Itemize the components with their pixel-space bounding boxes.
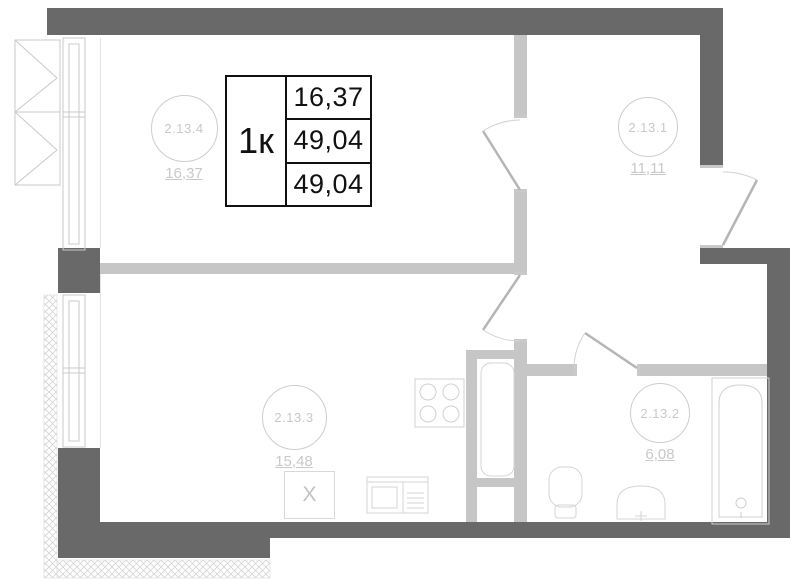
room-label-kitchen: 2.13.3 15,48 — [261, 385, 327, 470]
room-label-hallway: 2.13.1 11,11 — [618, 97, 678, 177]
balcony-glazing — [15, 40, 60, 185]
washing-machine-label: X — [302, 483, 316, 507]
window-kitchen — [63, 274, 101, 448]
window-living — [63, 38, 101, 250]
toilet-fixture — [549, 467, 582, 518]
apartment-spec-table: 1к 16,37 49,04 49,04 — [225, 75, 372, 207]
total-area-with-balcony-value: 49,04 — [287, 164, 370, 205]
bathtub-fixture — [712, 378, 769, 524]
plan-linework — [0, 0, 800, 581]
shaft-unit-fixture — [481, 363, 514, 476]
room-area: 11,11 — [630, 160, 665, 177]
room-area: 6,08 — [645, 446, 674, 463]
door-living — [483, 120, 520, 190]
room-number: 2.13.3 — [274, 410, 313, 425]
room-label-living: 2.13.4 16,37 — [150, 95, 218, 182]
hatch-strip-bottom — [57, 560, 270, 578]
room-number: 2.13.4 — [164, 121, 203, 136]
living-area-value: 16,37 — [287, 77, 370, 120]
stove-fixture — [415, 379, 464, 427]
room-label-bathroom: 2.13.2 6,08 — [630, 383, 690, 463]
floor-plan: 1к 16,37 49,04 49,04 2.13.4 16,37 2.13.3… — [0, 0, 800, 581]
unit-type-label: 1к — [227, 77, 287, 205]
total-area-value: 49,04 — [287, 120, 370, 163]
washing-machine-fixture: X — [284, 471, 335, 519]
door-hall-balcony — [723, 172, 757, 245]
room-number: 2.13.1 — [628, 120, 667, 135]
kitchen-sink-fixture — [367, 477, 428, 513]
door-kitchen — [483, 275, 520, 341]
door-bathroom — [574, 333, 637, 368]
hatch-strip-left — [44, 295, 57, 578]
room-number: 2.13.2 — [640, 406, 679, 421]
room-area: 16,37 — [165, 165, 203, 182]
room-area: 15,48 — [275, 453, 313, 470]
washbasin-fixture — [617, 486, 665, 521]
